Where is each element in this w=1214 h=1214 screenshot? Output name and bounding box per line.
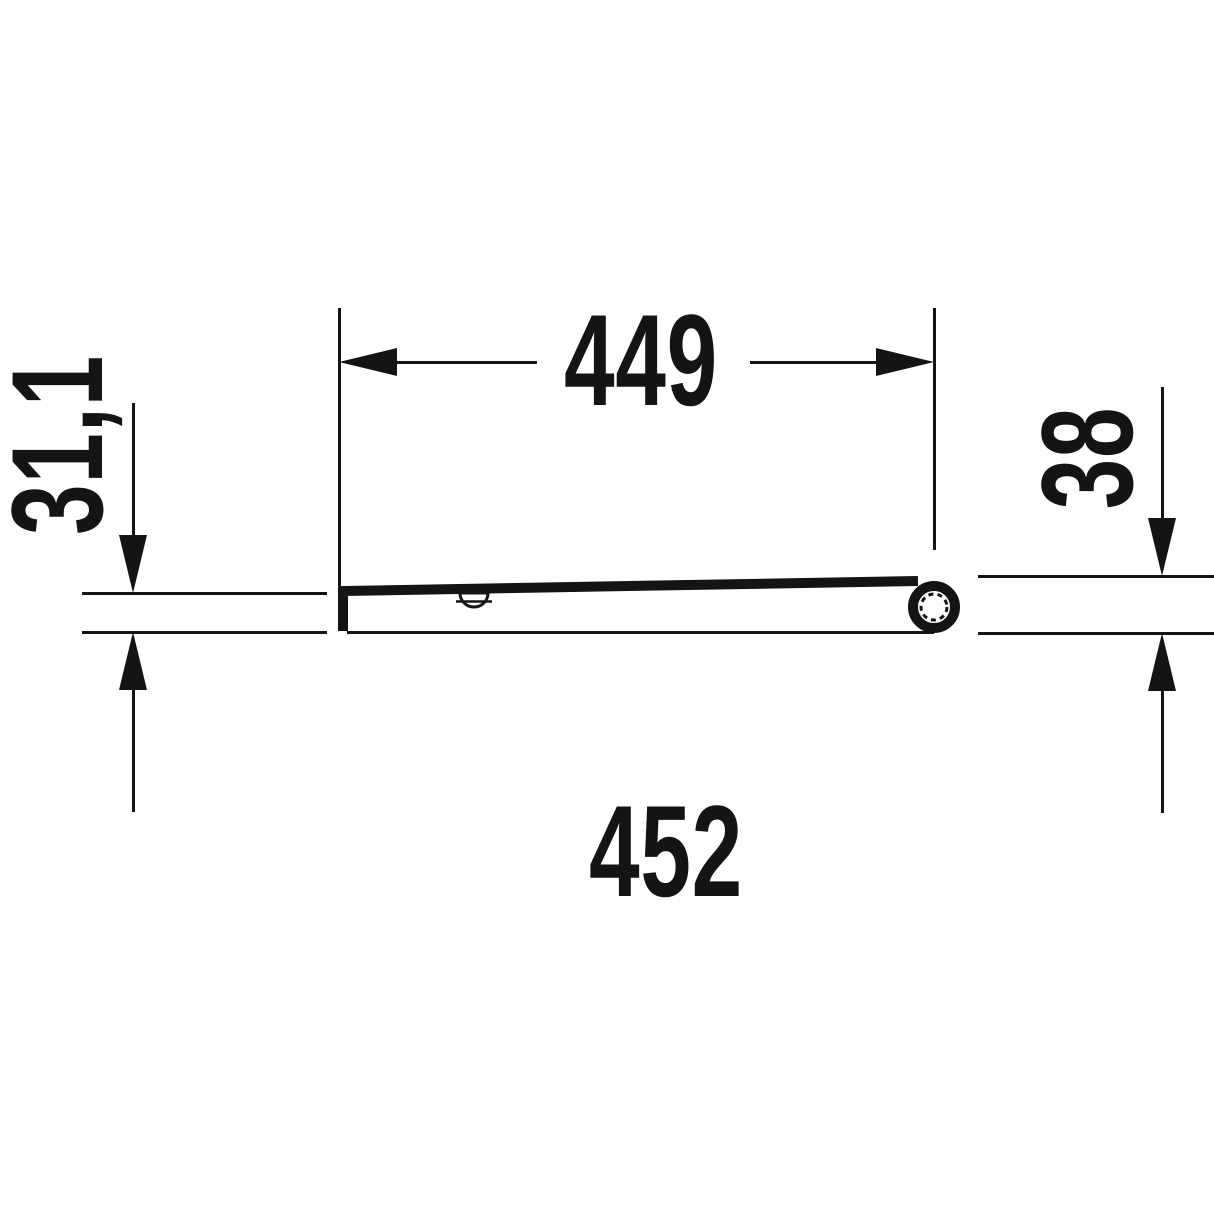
seat-buffer [460,593,488,607]
dimension-line-38-lower [1161,688,1164,813]
dimension-label-rear-thickness: 38 [1022,407,1152,510]
dimension-label-front-thickness: 31,1 [0,355,122,535]
dim-449-arrowhead-left [339,348,397,376]
dimension-line-449-left-segment [385,361,537,364]
dim-311-arrowhead-up [119,632,147,690]
dim-311-arrowhead-down [119,535,147,593]
dimension-line-311-lower [132,685,135,812]
dimension-label-hinge-distance: 449 [564,295,718,425]
dimension-line-311-upper [132,403,135,545]
dim-449-arrowhead-right [876,348,934,376]
hinge-knurl-ring [921,594,947,620]
dim-38-arrowhead-down [1148,518,1176,576]
dimension-label-overall-depth: 452 [589,786,743,916]
dimension-line-38-upper [1161,387,1164,525]
extension-line-rear-bottom [978,632,1214,635]
seat-outline [343,581,918,631]
extension-line-rear-top [978,575,1214,578]
extension-line-449-right [933,308,936,550]
dimension-drawing-canvas: 449 31,1 38 452 [0,0,1214,1214]
dim-38-arrowhead-up [1148,633,1176,691]
seat-profile-drawing [0,0,1214,1214]
dimension-line-449-right-segment [750,361,880,364]
